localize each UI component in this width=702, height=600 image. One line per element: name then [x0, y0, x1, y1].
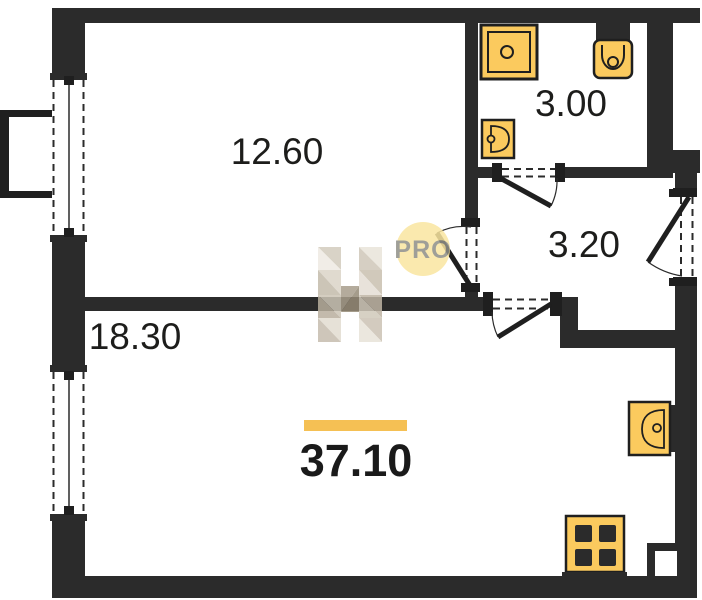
window-living-room: [50, 365, 87, 521]
shower-icon: [481, 25, 537, 79]
wall-segment: [647, 150, 700, 173]
balcony: [0, 110, 52, 198]
watermark-pro-label: PRO: [394, 236, 451, 264]
wall-segment: [675, 277, 697, 598]
watermark-h-logo-icon: [318, 247, 382, 342]
wall-segment: [52, 297, 483, 311]
watermark: PRO: [318, 222, 452, 342]
bedroom-area-label: 12.60: [231, 131, 324, 172]
door-swing-arc: [551, 178, 557, 206]
wall-segment: [560, 330, 697, 348]
floor-plan: 12.60 3.00 3.20 18.30 37.10: [0, 0, 702, 600]
area-labels: 12.60 3.00 3.20 18.30 37.10: [89, 83, 620, 486]
living-room-door: [483, 292, 562, 337]
total-area-accent-bar: [304, 420, 407, 431]
total-area-block: 37.10: [300, 420, 413, 486]
wall-segment: [52, 8, 85, 75]
kitchen-sink-icon: [629, 402, 678, 455]
entrance-door: [648, 188, 697, 286]
door-leaf: [500, 178, 551, 206]
bathroom-area-label: 3.00: [535, 83, 607, 124]
bathroom-door: [492, 163, 565, 206]
door-swing-arc: [648, 262, 682, 276]
door-leaf: [648, 197, 689, 262]
living-room-area-label: 18.30: [89, 316, 182, 357]
service-notch: [655, 551, 677, 576]
total-area-label: 37.10: [300, 435, 413, 486]
hallway-area-label: 3.20: [548, 224, 620, 265]
floor-plan-drawing: 12.60 3.00 3.20 18.30 37.10: [0, 0, 702, 600]
wall-segment: [52, 576, 697, 598]
toilet-icon: [594, 23, 632, 78]
wall-segment: [465, 22, 478, 218]
wall-segment: [52, 8, 700, 23]
stove-icon: [562, 516, 627, 578]
window-bedroom: [50, 73, 87, 242]
washbasin-icon: [482, 120, 514, 158]
wall-segment: [557, 167, 650, 178]
